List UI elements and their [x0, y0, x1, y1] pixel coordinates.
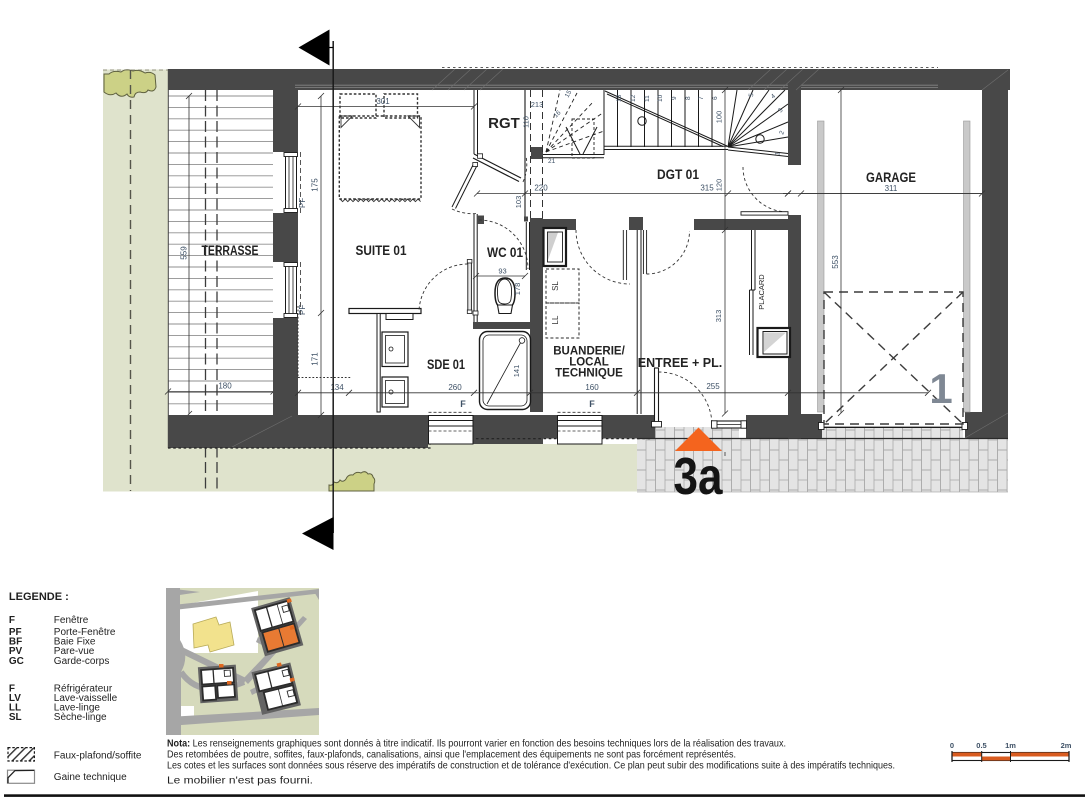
svg-text:Sèche-linge: Sèche-linge — [54, 712, 107, 723]
svg-text:93: 93 — [498, 267, 506, 276]
svg-text:6: 6 — [712, 96, 719, 100]
svg-text:F: F — [589, 399, 595, 409]
svg-text:8: 8 — [685, 96, 692, 100]
svg-text:260: 260 — [448, 383, 462, 392]
svg-text:180: 180 — [218, 382, 232, 391]
svg-text:110: 110 — [522, 116, 531, 128]
svg-text:160: 160 — [585, 383, 599, 392]
svg-text:12: 12 — [630, 94, 637, 102]
svg-text:DGT 01: DGT 01 — [657, 166, 699, 182]
svg-text:103: 103 — [514, 196, 523, 209]
svg-text:100: 100 — [715, 111, 724, 124]
svg-text:GC: GC — [9, 656, 24, 667]
svg-text:Faux-plafond/soffite: Faux-plafond/soffite — [54, 751, 142, 762]
svg-text:F: F — [9, 615, 15, 626]
svg-text:301: 301 — [376, 97, 390, 106]
svg-text:Des retombées de poutre, soffi: Des retombées de poutre, soffites, faux-… — [167, 750, 736, 761]
svg-text:3a: 3a — [674, 448, 724, 506]
svg-text:1m: 1m — [1005, 741, 1016, 750]
svg-text:134: 134 — [330, 383, 344, 392]
svg-text:LL: LL — [551, 315, 560, 324]
svg-text:1: 1 — [929, 365, 952, 412]
svg-text:SDE 01: SDE 01 — [427, 357, 465, 372]
svg-text:RGT: RGT — [488, 115, 520, 132]
svg-text:313: 313 — [714, 310, 723, 323]
svg-text:120: 120 — [715, 179, 724, 192]
svg-text:Garde-corps: Garde-corps — [54, 656, 110, 667]
svg-text:220: 220 — [534, 184, 548, 193]
svg-text:PF: PF — [298, 305, 307, 315]
svg-text:TECHNIQUE: TECHNIQUE — [555, 368, 623, 380]
svg-text:10: 10 — [657, 94, 664, 102]
svg-text:Gaine technique: Gaine technique — [54, 772, 127, 783]
svg-text:SL: SL — [9, 712, 22, 723]
svg-text:WC 01: WC 01 — [487, 245, 523, 260]
svg-text:213: 213 — [531, 100, 544, 109]
svg-text:141: 141 — [512, 365, 521, 378]
svg-text:Nota: Les renseignements graph: Nota: Les renseignements graphiques sont… — [167, 739, 786, 750]
svg-text:ENTREE + PL.: ENTREE + PL. — [638, 356, 722, 370]
svg-text:315: 315 — [700, 184, 714, 193]
svg-text:0: 0 — [950, 741, 954, 750]
svg-text:GARAGE: GARAGE — [866, 169, 916, 185]
svg-text:311: 311 — [885, 184, 898, 193]
svg-text:559: 559 — [180, 246, 189, 260]
svg-text:11: 11 — [644, 95, 651, 102]
svg-text:Le mobilier n'est pas fourni.: Le mobilier n'est pas fourni. — [167, 776, 313, 787]
svg-text:F: F — [460, 399, 466, 409]
svg-text:553: 553 — [831, 255, 840, 269]
svg-text:Les cotes et les surfaces sont: Les cotes et les surfaces sont données s… — [167, 761, 895, 772]
svg-text:255: 255 — [706, 382, 720, 391]
svg-text:Fenêtre: Fenêtre — [54, 615, 89, 626]
svg-text:LEGENDE :: LEGENDE : — [9, 591, 69, 603]
svg-text:PF: PF — [298, 198, 307, 208]
svg-text:SUITE 01: SUITE 01 — [356, 243, 407, 258]
svg-text:178: 178 — [513, 283, 522, 296]
svg-text:2m: 2m — [1061, 741, 1072, 750]
svg-text:7: 7 — [698, 96, 705, 100]
svg-text:13: 13 — [616, 94, 623, 102]
svg-text:171: 171 — [311, 352, 320, 366]
svg-text:TERRASSE: TERRASSE — [202, 243, 259, 258]
svg-text:9: 9 — [671, 96, 678, 100]
svg-text:PLACARD: PLACARD — [757, 274, 766, 310]
svg-text:0.5: 0.5 — [976, 741, 986, 750]
svg-text:21: 21 — [548, 158, 556, 165]
svg-text:175: 175 — [311, 178, 320, 192]
svg-text:SL: SL — [551, 281, 560, 291]
